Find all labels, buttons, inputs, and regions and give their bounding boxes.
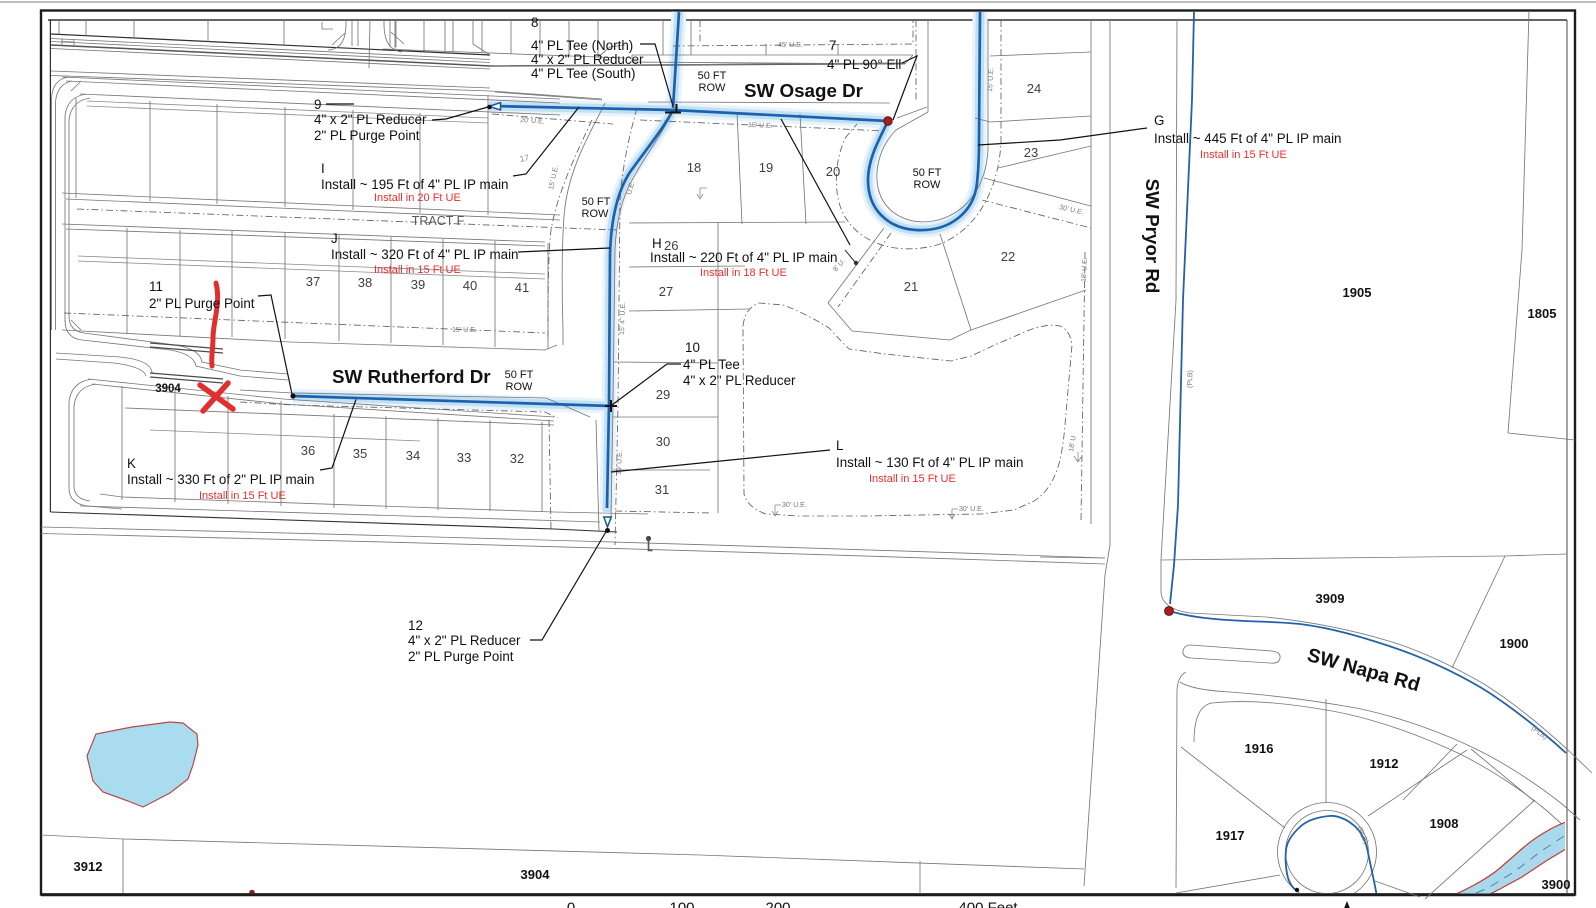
svg-text:34: 34 xyxy=(406,448,420,463)
svg-text:I: I xyxy=(321,161,325,176)
svg-text:1805: 1805 xyxy=(1528,306,1557,321)
svg-text:23: 23 xyxy=(1024,145,1038,160)
svg-text:30' U.E.: 30' U.E. xyxy=(1059,204,1085,216)
svg-text:L: L xyxy=(836,438,843,453)
svg-text:15' U.E.: 15' U.E. xyxy=(748,122,773,130)
svg-text:22: 22 xyxy=(1001,249,1015,264)
svg-text:400 Feet: 400 Feet xyxy=(958,900,1018,908)
svg-text:11: 11 xyxy=(149,279,163,294)
svg-text:17: 17 xyxy=(519,152,531,164)
svg-text:32: 32 xyxy=(510,451,524,466)
svg-text:Install in 15 Ft UE: Install in 15 Ft UE xyxy=(869,473,956,485)
svg-text:15' U.E.: 15' U.E. xyxy=(548,165,560,191)
svg-text:J: J xyxy=(331,231,338,246)
svg-text:0: 0 xyxy=(567,900,575,908)
svg-text:7: 7 xyxy=(829,38,836,53)
svg-text:45' U.E.: 45' U.E. xyxy=(778,42,803,49)
svg-text:3904: 3904 xyxy=(155,383,181,395)
svg-text:SW Osage Dr: SW Osage Dr xyxy=(744,80,864,101)
svg-text:20: 20 xyxy=(826,164,840,179)
svg-text:12: 12 xyxy=(408,618,423,633)
svg-text:ROW: ROW xyxy=(914,179,942,191)
svg-text:20' U.E.: 20' U.E. xyxy=(520,117,545,126)
svg-text:Install in 15 Ft UE: Install in 15 Ft UE xyxy=(1200,149,1287,161)
svg-text:ROW: ROW xyxy=(506,381,534,393)
svg-text:15' 4" U.E.: 15' 4" U.E. xyxy=(619,302,627,335)
svg-text:41: 41 xyxy=(515,280,529,295)
svg-text:3900: 3900 xyxy=(1542,877,1571,892)
svg-text:ROW: ROW xyxy=(582,208,610,220)
svg-text:29: 29 xyxy=(656,387,670,402)
svg-text:27: 27 xyxy=(659,284,673,299)
svg-text:2" PL Purge Point: 2" PL Purge Point xyxy=(149,296,255,311)
svg-text:Install ~ 330 Ft of 2" PL IP m: Install ~ 330 Ft of 2" PL IP main xyxy=(127,472,315,487)
svg-text:39: 39 xyxy=(411,277,425,292)
svg-text:200: 200 xyxy=(765,900,790,908)
svg-text:3909: 3909 xyxy=(1316,591,1345,606)
svg-text:Install in 18 Ft UE: Install in 18 Ft UE xyxy=(700,267,787,279)
svg-text:50 FT: 50 FT xyxy=(582,196,611,208)
svg-text:(PLB): (PLB) xyxy=(1355,826,1369,845)
svg-text:40: 40 xyxy=(463,278,477,293)
svg-text:30: 30 xyxy=(656,434,670,449)
svg-text:50 FT: 50 FT xyxy=(913,167,942,179)
svg-text:SW Rutherford Dr: SW Rutherford Dr xyxy=(332,366,491,387)
svg-text:37: 37 xyxy=(306,274,320,289)
svg-text:(PLB): (PLB) xyxy=(1530,725,1549,741)
svg-text:Install in 15 Ft UE: Install in 15 Ft UE xyxy=(374,264,461,276)
svg-text:4" PL 90° Ell: 4" PL 90° Ell xyxy=(827,57,901,72)
svg-text:30' U.E.: 30' U.E. xyxy=(782,502,807,509)
svg-text:15' U.E.: 15' U.E. xyxy=(452,327,477,334)
svg-text:18' U: 18' U xyxy=(1068,435,1078,452)
svg-text:24: 24 xyxy=(1027,81,1041,96)
svg-text:SW Pryor Rd: SW Pryor Rd xyxy=(1142,179,1163,294)
svg-text:18: 18 xyxy=(687,160,701,175)
svg-text:TRACT F: TRACT F xyxy=(412,214,465,228)
svg-text:2" PL Purge Point: 2" PL Purge Point xyxy=(314,128,420,143)
svg-text:18' U.E.: 18' U.E. xyxy=(1081,257,1089,282)
svg-text:G: G xyxy=(1154,113,1164,128)
svg-text:H: H xyxy=(652,236,662,251)
svg-text:100: 100 xyxy=(669,900,694,908)
svg-text:15' U.E.: 15' U.E. xyxy=(987,67,995,92)
svg-text:8: 8 xyxy=(531,15,538,30)
svg-text:31: 31 xyxy=(655,482,669,497)
svg-text:Install ~ 445 Ft of 4" PL IP m: Install ~ 445 Ft of 4" PL IP main xyxy=(1154,131,1342,146)
svg-text:4" PL Tee: 4" PL Tee xyxy=(683,357,740,372)
svg-text:1917: 1917 xyxy=(1216,828,1245,843)
svg-text:50 FT: 50 FT xyxy=(505,369,534,381)
svg-text:Install ~ 220 Ft of 4" PL IP m: Install ~ 220 Ft of 4" PL IP main xyxy=(650,250,838,265)
svg-text:9: 9 xyxy=(314,97,321,112)
svg-text:19' U.E.: 19' U.E. xyxy=(616,450,624,475)
svg-text:21: 21 xyxy=(904,279,918,294)
svg-text:1900: 1900 xyxy=(1500,636,1529,651)
svg-text:1912: 1912 xyxy=(1370,756,1399,771)
svg-text:1916: 1916 xyxy=(1245,741,1274,756)
svg-text:35: 35 xyxy=(353,446,367,461)
svg-text:K: K xyxy=(127,456,136,471)
svg-text:4" x 2" PL Reducer: 4" x 2" PL Reducer xyxy=(683,373,796,388)
svg-text:Install in 15 Ft UE: Install in 15 Ft UE xyxy=(199,490,286,502)
svg-text:3904: 3904 xyxy=(521,867,551,882)
svg-text:4" x 2" PL Reducer: 4" x 2" PL Reducer xyxy=(408,633,521,648)
svg-text:Install ~ 130 Ft of 4" PL IP m: Install ~ 130 Ft of 4" PL IP main xyxy=(836,455,1024,470)
svg-text:ROW: ROW xyxy=(699,82,727,94)
svg-text:1908: 1908 xyxy=(1430,816,1459,831)
svg-text:50 FT: 50 FT xyxy=(698,70,727,82)
svg-text:19: 19 xyxy=(759,160,773,175)
svg-text:(PLB): (PLB) xyxy=(1187,370,1194,388)
svg-text:4" x 2" PL Reducer: 4" x 2" PL Reducer xyxy=(531,52,644,67)
svg-text:36: 36 xyxy=(301,443,315,458)
svg-text:10: 10 xyxy=(685,340,700,355)
svg-text:2" PL Purge Point: 2" PL Purge Point xyxy=(408,649,514,664)
svg-text:4" PL Tee (South): 4" PL Tee (South) xyxy=(531,66,636,81)
svg-text:3912: 3912 xyxy=(74,859,103,874)
svg-text:1905: 1905 xyxy=(1343,285,1372,300)
svg-text:4" x 2" PL Reducer: 4" x 2" PL Reducer xyxy=(314,112,427,127)
svg-text:Install in 20 Ft UE: Install in 20 Ft UE xyxy=(374,192,461,204)
svg-text:38: 38 xyxy=(358,275,372,290)
svg-text:33: 33 xyxy=(457,450,471,465)
svg-text:Install ~ 320 Ft of 4" PL IP m: Install ~ 320 Ft of 4" PL IP main xyxy=(331,247,519,262)
svg-text:4" PL Tee (North): 4" PL Tee (North) xyxy=(531,38,633,53)
svg-text:30' U.E.: 30' U.E. xyxy=(959,506,984,513)
svg-text:Install ~ 195 Ft of 4" PL IP m: Install ~ 195 Ft of 4" PL IP main xyxy=(321,177,509,192)
